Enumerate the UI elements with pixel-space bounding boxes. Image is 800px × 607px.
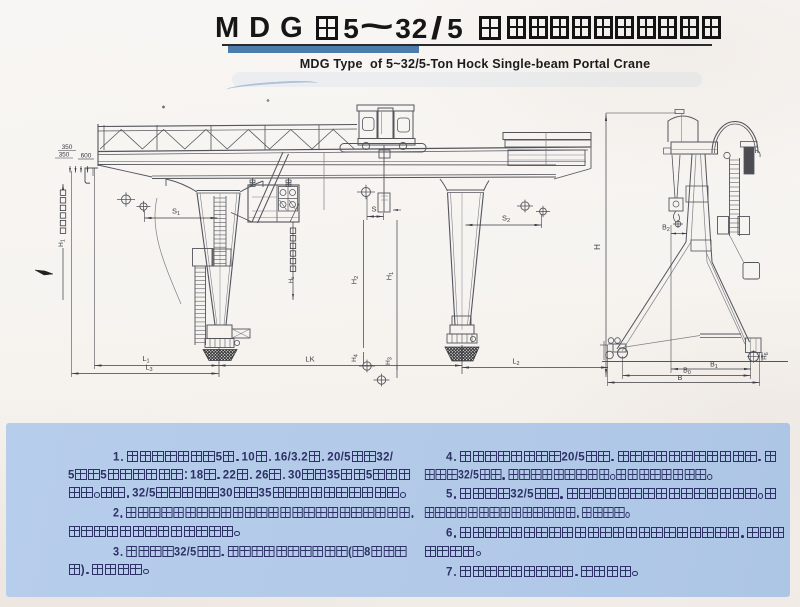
- svg-text:S1: S1: [172, 207, 180, 218]
- svg-text:H2: H2: [350, 276, 361, 284]
- svg-text:H1: H1: [385, 272, 396, 280]
- svg-text:B2: B2: [662, 225, 670, 234]
- svg-text:L2: L2: [512, 357, 519, 368]
- svg-text:600: 600: [81, 153, 92, 160]
- svg-text:H1: H1: [58, 239, 67, 247]
- svg-text:H3: H3: [385, 357, 394, 365]
- svg-text:H6: H6: [763, 352, 771, 359]
- svg-text:LK: LK: [305, 355, 314, 364]
- svg-text:S2: S2: [502, 214, 510, 225]
- svg-text:B: B: [678, 375, 683, 382]
- svg-text:350: 350: [59, 152, 70, 159]
- svg-text:H4: H4: [351, 354, 360, 362]
- svg-text:L3: L3: [145, 363, 152, 374]
- svg-text:Hs: Hs: [289, 276, 295, 283]
- svg-text:H: H: [593, 244, 602, 250]
- svg-text:350: 350: [62, 144, 73, 151]
- svg-text:S: S: [371, 205, 376, 214]
